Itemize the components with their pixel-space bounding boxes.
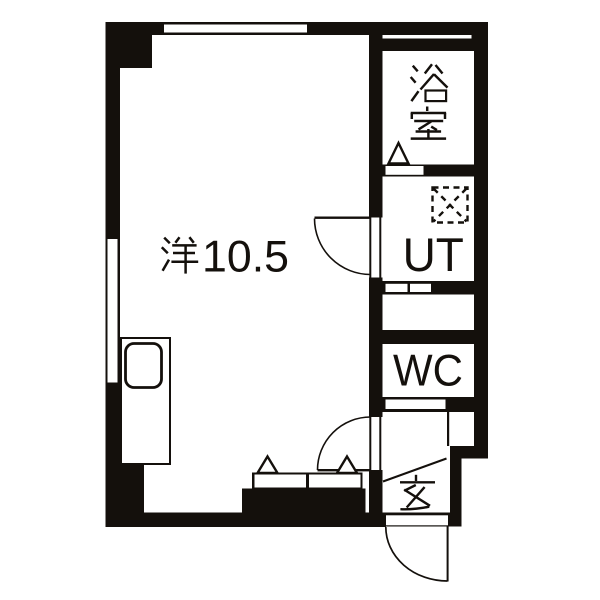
svg-text:10.5: 10.5 — [202, 232, 289, 281]
svg-text:WC: WC — [393, 347, 463, 396]
svg-text:UT: UT — [403, 228, 464, 281]
